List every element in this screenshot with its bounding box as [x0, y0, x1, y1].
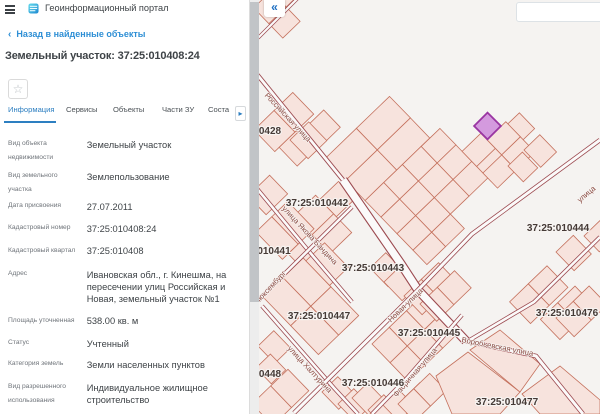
- svg-text:37:25:010447: 37:25:010447: [288, 311, 351, 322]
- svg-text:0448: 0448: [259, 369, 282, 380]
- svg-text:37:25:010443: 37:25:010443: [342, 263, 405, 274]
- svg-text:37:25:010477: 37:25:010477: [476, 397, 539, 408]
- svg-text:37:25:010442: 37:25:010442: [286, 198, 349, 209]
- svg-text:37:25:010445: 37:25:010445: [398, 328, 461, 339]
- svg-text:37:25:010476: 37:25:010476: [536, 308, 599, 319]
- svg-text:37:25:010446: 37:25:010446: [342, 378, 405, 389]
- svg-text:37:25:010444: 37:25:010444: [527, 223, 590, 234]
- svg-text:010441: 010441: [259, 246, 291, 257]
- svg-text:0428: 0428: [259, 126, 282, 137]
